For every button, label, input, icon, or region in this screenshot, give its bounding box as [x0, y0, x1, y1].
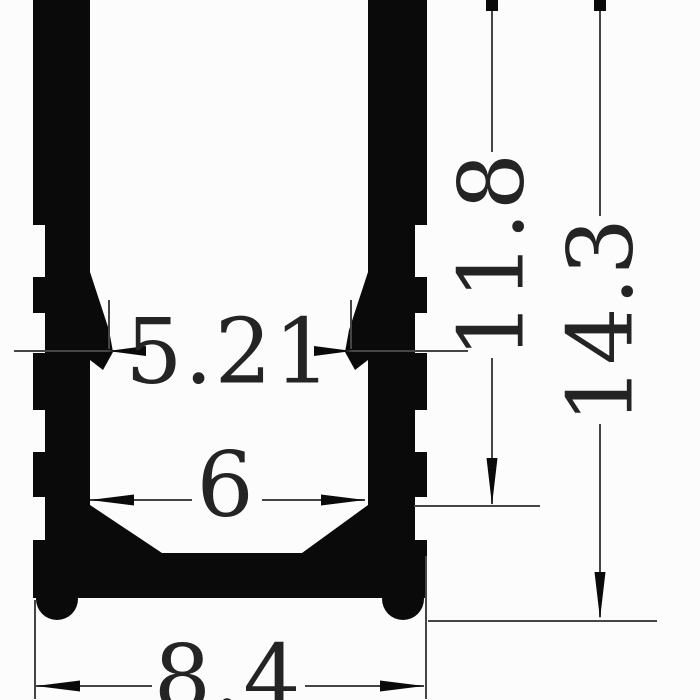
- left-foot: [36, 578, 78, 620]
- dim-overall-height-label: 14.3: [549, 216, 654, 424]
- profile-cross-section-canvas: 5.21 6 8.4 11.8 14.3: [0, 0, 700, 700]
- technical-drawing: 5.21 6 8.4 11.8 14.3: [0, 0, 700, 700]
- dim-inner-depth-label: 11.8: [440, 151, 545, 359]
- dim-inner-depth-top-marker: [486, 0, 498, 11]
- dim-overall-height-top-marker: [594, 0, 606, 11]
- dim-inner-width-label: 6: [196, 433, 255, 538]
- right-foot: [382, 578, 424, 620]
- dim-outer-width-label: 8.4: [154, 626, 303, 700]
- dim-hook-gap-label: 5.21: [125, 300, 333, 405]
